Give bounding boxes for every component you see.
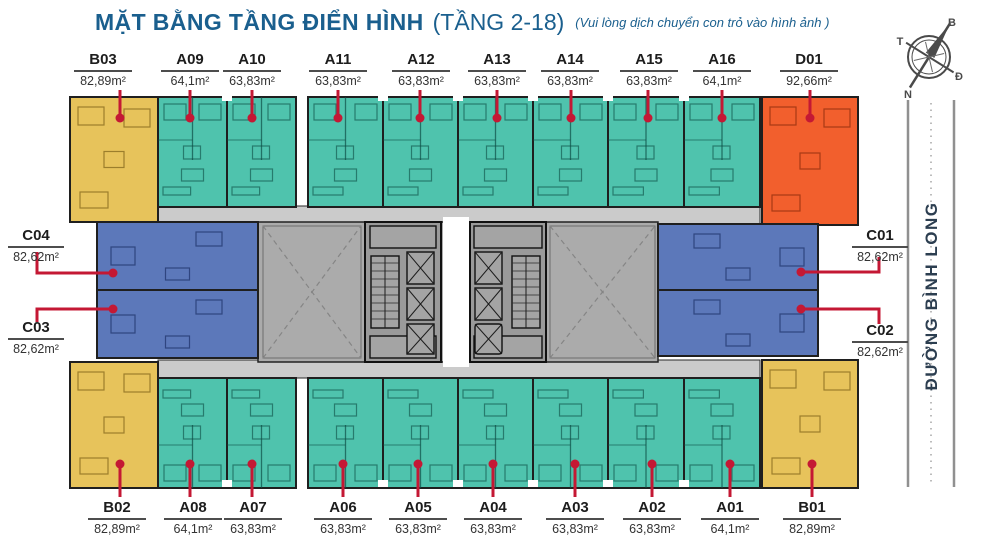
unit-label-A03: A0363,83m² [546, 500, 604, 536]
callout-dot-A14 [567, 114, 576, 123]
unit-name: A03 [546, 500, 604, 520]
core-zone [258, 217, 658, 367]
unit-area: 63,83m² [224, 520, 282, 536]
unit-label-A12: A1263,83m² [392, 52, 450, 88]
unit-area: 64,1m² [161, 72, 219, 88]
building-gap [443, 217, 469, 367]
unit-label-A14: A1463,83m² [541, 52, 599, 88]
unit-area: 63,83m² [623, 520, 681, 536]
unit-area: 63,83m² [546, 520, 604, 536]
callout-dot-A09 [186, 114, 195, 123]
callout-dot-A02 [648, 460, 657, 469]
unit-A01-area[interactable] [684, 378, 760, 488]
callout-dot-A04 [489, 460, 498, 469]
unit-name: C01 [852, 228, 908, 248]
unit-label-A04: A0463,83m² [464, 500, 522, 536]
unit-name: B03 [74, 52, 132, 72]
unit-label-D01: D0192,66m² [780, 52, 838, 88]
callout-dot-A07 [248, 460, 257, 469]
unit-area: 82,89m² [783, 520, 841, 536]
unit-area: 64,1m² [164, 520, 222, 536]
unit-name: A02 [623, 500, 681, 520]
callout-dot-A10 [248, 114, 257, 123]
callout-dot-C04 [109, 269, 118, 278]
unit-C04-area[interactable] [97, 222, 258, 290]
elevator-bank-2 [475, 252, 502, 354]
unit-label-C03: C0382,62m² [8, 320, 64, 356]
unit-name: A08 [164, 500, 222, 520]
unit-name: A10 [223, 52, 281, 72]
compass-icon: B N T Đ [887, 9, 975, 103]
callout-dot-A11 [334, 114, 343, 123]
unit-area: 63,83m² [309, 72, 367, 88]
unit-name: C04 [8, 228, 64, 248]
unit-label-A01: A0164,1m² [701, 500, 759, 536]
unit-C01-area[interactable] [658, 224, 818, 290]
unit-A11-area[interactable] [308, 97, 383, 207]
unit-label-A10: A1063,83m² [223, 52, 281, 88]
callout-dot-B01 [808, 460, 817, 469]
callout-dot-A08 [186, 460, 195, 469]
compass-east-label: Đ [955, 71, 963, 83]
unit-name: A05 [389, 500, 447, 520]
unit-area: 82,62m² [852, 248, 908, 264]
callout-dot-C03 [109, 305, 118, 314]
unit-B03-area[interactable] [70, 97, 158, 222]
unit-label-A15: A1563,83m² [620, 52, 678, 88]
unit-C02-area[interactable] [658, 290, 818, 356]
unit-label-A05: A0563,83m² [389, 500, 447, 536]
callout-dot-B02 [116, 460, 125, 469]
unit-A06-area[interactable] [308, 378, 383, 488]
unit-label-C04: C0482,62m² [8, 228, 64, 264]
unit-A08-area[interactable] [158, 378, 227, 488]
unit-area: 63,83m² [314, 520, 372, 536]
unit-name: A14 [541, 52, 599, 72]
unit-area: 82,89m² [88, 520, 146, 536]
unit-name: A07 [224, 500, 282, 520]
unit-name: A15 [620, 52, 678, 72]
unit-label-A13: A1363,83m² [468, 52, 526, 88]
unit-area: 64,1m² [693, 72, 751, 88]
unit-name: C03 [8, 320, 64, 340]
unit-name: A16 [693, 52, 751, 72]
unit-label-B01: B0182,89m² [783, 500, 841, 536]
unit-B01-area[interactable] [762, 360, 858, 488]
callout-dot-C02 [797, 305, 806, 314]
core1-lobby [370, 226, 436, 248]
unit-area: 63,83m² [223, 72, 281, 88]
callout-dot-A06 [339, 460, 348, 469]
stair-1 [371, 256, 399, 328]
unit-area: 92,66m² [780, 72, 838, 88]
callout-dot-C01 [797, 268, 806, 277]
unit-A05-area[interactable] [383, 378, 458, 488]
unit-area: 63,83m² [620, 72, 678, 88]
unit-name: A12 [392, 52, 450, 72]
unit-A04-area[interactable] [458, 378, 533, 488]
callout-dot-A15 [644, 114, 653, 123]
unit-label-A09: A0964,1m² [161, 52, 219, 88]
unit-name: D01 [780, 52, 838, 72]
callout-dot-A16 [718, 114, 727, 123]
street-binh-long: ĐƯỜNG BÌNH LONG [908, 100, 954, 487]
unit-area: 82,89m² [74, 72, 132, 88]
callout-dot-A01 [726, 460, 735, 469]
unit-area: 63,83m² [541, 72, 599, 88]
unit-label-B02: B0282,89m² [88, 500, 146, 536]
unit-area: 63,83m² [389, 520, 447, 536]
core-block-1 [365, 222, 441, 362]
street-name-label: ĐƯỜNG BÌNH LONG [922, 202, 941, 391]
floorplan-page: MẶT BẰNG TẦNG ĐIỂN HÌNH (TẦNG 2-18) (Vui… [0, 0, 1000, 536]
unit-A10-area[interactable] [227, 97, 296, 207]
unit-label-C02: C0282,62m² [852, 323, 908, 359]
unit-name: A01 [701, 500, 759, 520]
callout-dot-D01 [806, 114, 815, 123]
unit-A02-area[interactable] [608, 378, 684, 488]
unit-label-A06: A0663,83m² [314, 500, 372, 536]
unit-A03-area[interactable] [533, 378, 608, 488]
elevator-bank-1 [407, 252, 434, 354]
compass-west-label: T [897, 36, 904, 48]
unit-area: 82,62m² [852, 343, 908, 359]
unit-area: 63,83m² [464, 520, 522, 536]
unit-area: 64,1m² [701, 520, 759, 536]
stair-2 [512, 256, 540, 328]
unit-area: 82,62m² [8, 248, 64, 264]
callout-dot-A03 [571, 460, 580, 469]
unit-A07-area[interactable] [227, 378, 296, 488]
unit-label-A16: A1664,1m² [693, 52, 751, 88]
unit-name: A11 [309, 52, 367, 72]
unit-name: A04 [464, 500, 522, 520]
unit-area: 63,83m² [392, 72, 450, 88]
unit-A15-area[interactable] [608, 97, 684, 207]
unit-name: A06 [314, 500, 372, 520]
unit-label-B03: B0382,89m² [74, 52, 132, 88]
unit-label-C01: C0182,62m² [852, 228, 908, 264]
callout-dot-B03 [116, 114, 125, 123]
unit-name: B02 [88, 500, 146, 520]
compass-south-label: N [904, 89, 912, 101]
core2-lobby [474, 226, 542, 248]
unit-name: A13 [468, 52, 526, 72]
unit-B02-area[interactable] [70, 362, 158, 488]
unit-A09-area[interactable] [158, 97, 227, 207]
unit-label-A08: A0864,1m² [164, 500, 222, 536]
callout-dot-A13 [493, 114, 502, 123]
unit-label-A07: A0763,83m² [224, 500, 282, 536]
unit-label-A11: A1163,83m² [309, 52, 367, 88]
core-block-2 [470, 222, 546, 362]
unit-label-A02: A0263,83m² [623, 500, 681, 536]
unit-area: 82,62m² [8, 340, 64, 356]
unit-name: A09 [161, 52, 219, 72]
compass-north-label: B [948, 17, 956, 29]
unit-C03-area[interactable] [97, 290, 258, 358]
callout-dot-A05 [414, 460, 423, 469]
unit-name: C02 [852, 323, 908, 343]
callout-dot-A12 [416, 114, 425, 123]
unit-name: B01 [783, 500, 841, 520]
unit-area: 63,83m² [468, 72, 526, 88]
